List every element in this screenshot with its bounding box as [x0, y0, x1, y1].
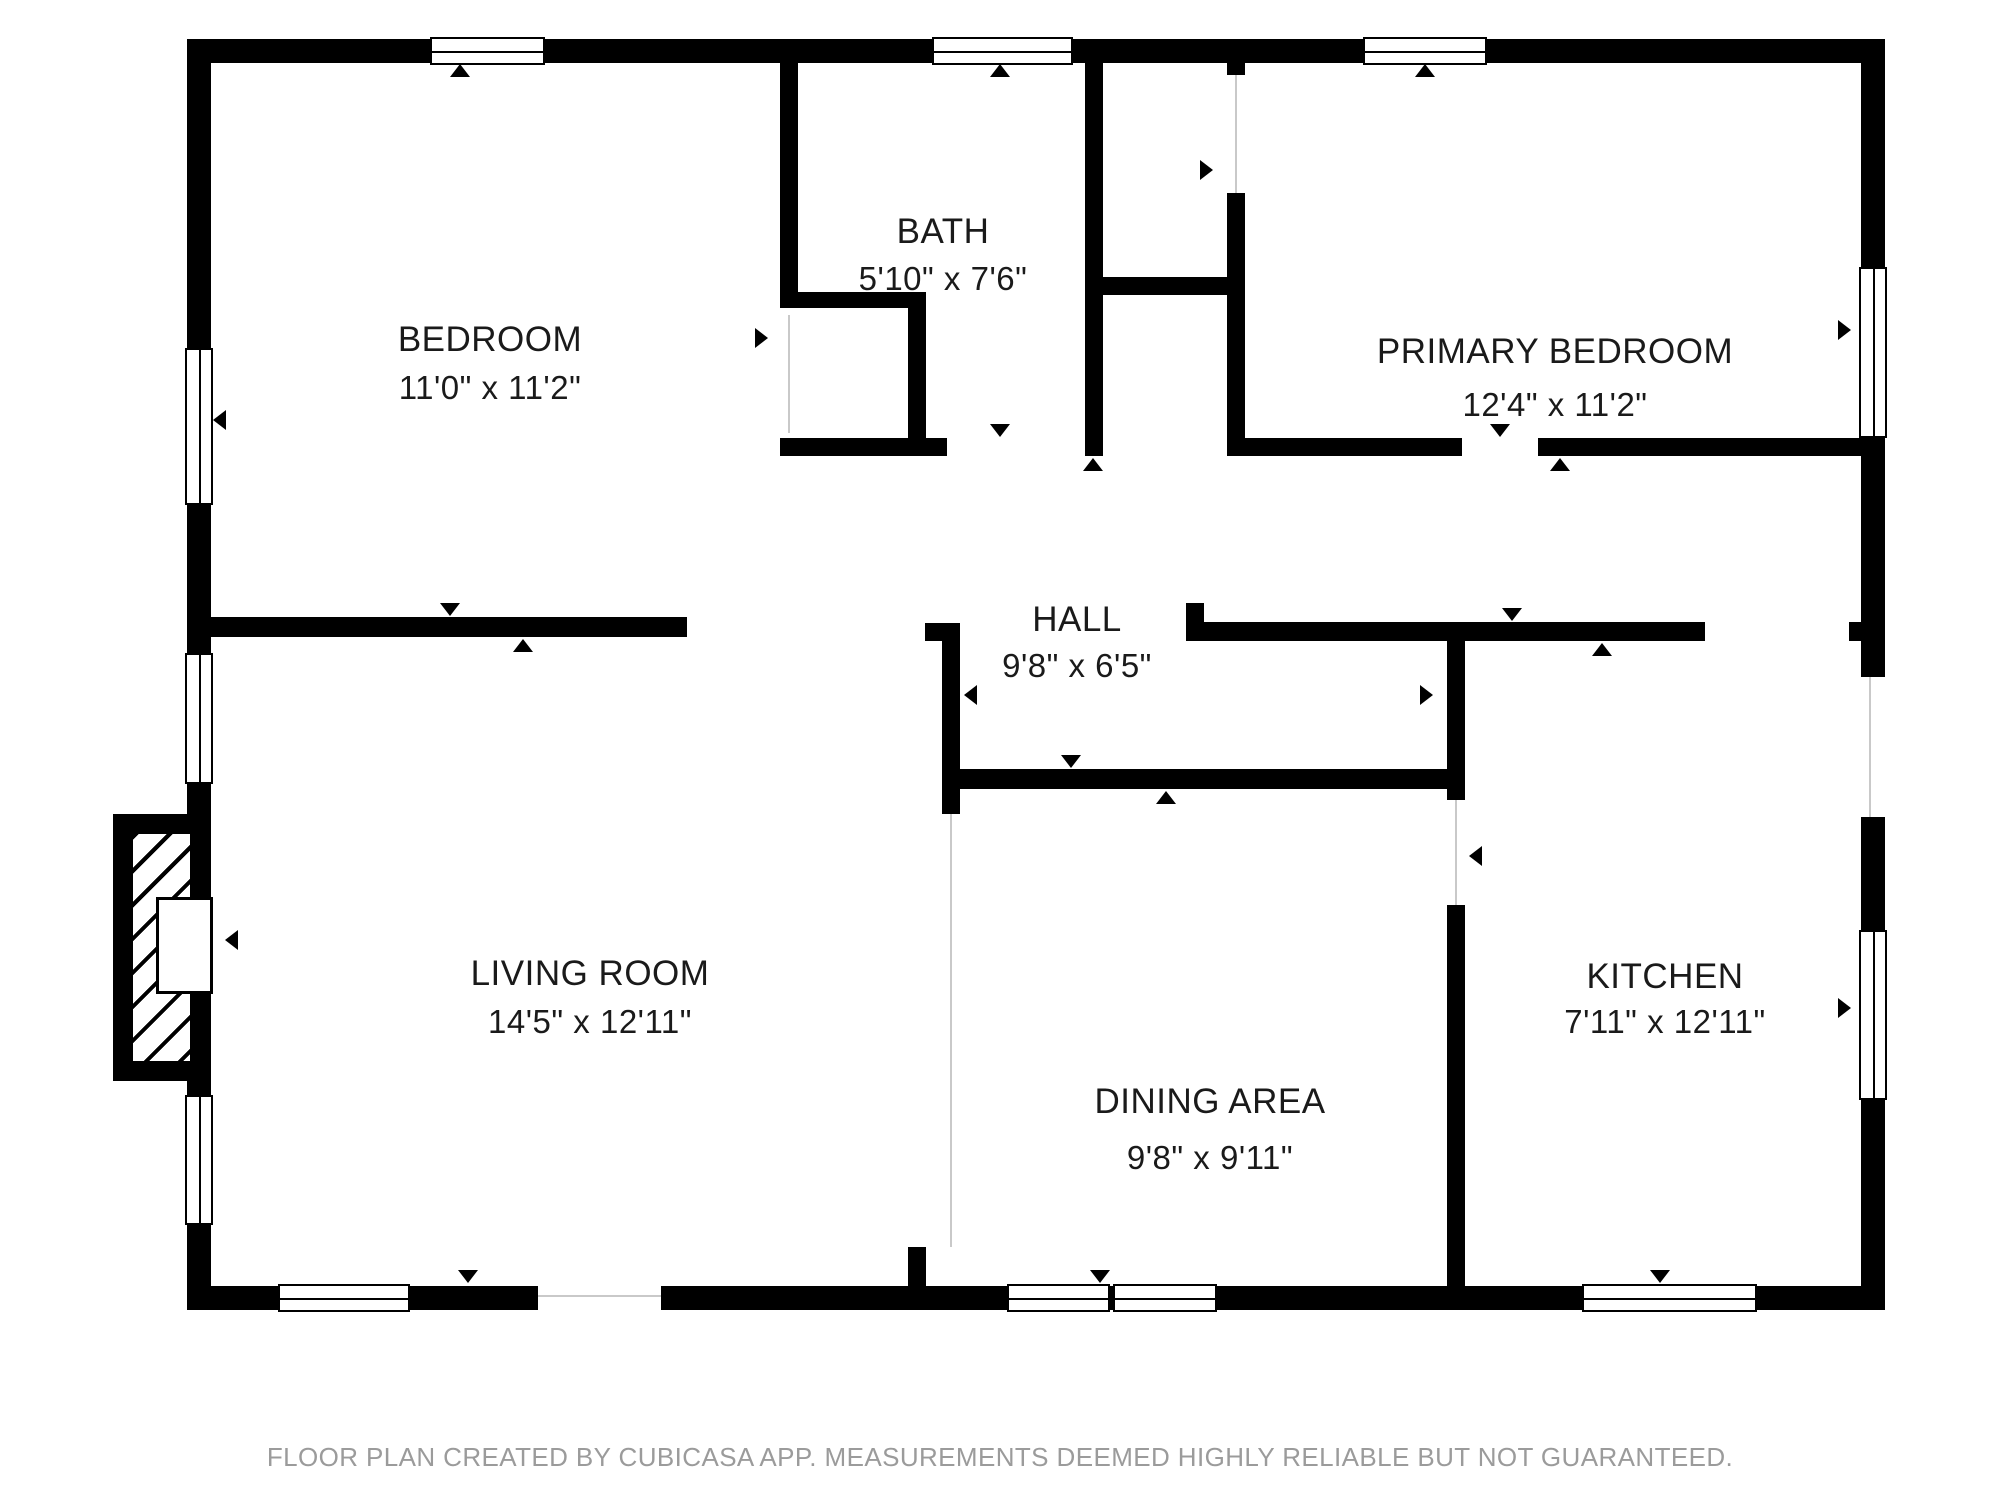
primary-door-marker-out [1550, 458, 1570, 471]
dining-bottom-window-left [1007, 1284, 1110, 1312]
hall-bottom-wall [960, 769, 1465, 789]
room-label-primary-bedroom: PRIMARY BEDROOM [1377, 332, 1733, 372]
room-dims-hall: 9'8" x 6'5" [1002, 647, 1152, 685]
hall-bottom-marker-in [1061, 755, 1081, 768]
primary-bedroom-top-window [1363, 37, 1487, 65]
living-room-bottom-window-mullion [279, 1298, 409, 1300]
kitchen-top-wall-east-stub [1849, 622, 1861, 641]
primary-bedroom-left-wall [1227, 193, 1245, 456]
bedroom-top-window-mullion [431, 51, 544, 53]
primary-right-window-marker [1838, 320, 1851, 340]
room-dims-living-room: 14'5" x 12'11" [488, 1003, 692, 1041]
bath-top-window [932, 37, 1073, 65]
primary-top-window-marker [1415, 64, 1435, 77]
hall-width-marker-east [1420, 685, 1433, 705]
dining-kitchen-wall-lower [1447, 905, 1465, 1286]
closet-divider-wall [1103, 277, 1227, 295]
living-room-bottom-window [278, 1284, 410, 1312]
bedroom-top-window-marker [450, 64, 470, 77]
bedroom-left-window-mullion [199, 349, 201, 504]
bedroom-closet-opening [788, 315, 790, 433]
kitchen-top-wall-stub-up [1186, 603, 1204, 622]
primary-bedroom-bottom-wall-east [1538, 438, 1861, 456]
kitchen-bottom-window [1582, 1284, 1757, 1312]
bedroom-left-window [185, 348, 213, 505]
primary-closet-opening [1235, 75, 1237, 193]
hall-west-wall [942, 623, 960, 814]
primary-bedroom-left-wall-stub [1227, 63, 1245, 75]
dining-bottom-window-right-mullion [1114, 1298, 1216, 1300]
room-dims-bath: 5'10" x 7'6" [859, 260, 1028, 298]
kitchen-bottom-window-mullion [1583, 1298, 1756, 1300]
room-dims-primary-bedroom: 12'4" x 11'2" [1462, 386, 1647, 424]
room-label-bedroom: BEDROOM [398, 320, 582, 360]
room-dims-bedroom: 11'0" x 11'2" [399, 369, 582, 407]
room-dims-dining-area: 9'8" x 9'11" [1127, 1139, 1293, 1177]
bedroom-top-window [430, 37, 545, 65]
front-door-sill [538, 1295, 661, 1297]
dining-kitchen-opening [1455, 800, 1457, 905]
primary-bedroom-right-window-mullion [1873, 268, 1875, 437]
bedroom-door-marker-in [440, 603, 460, 616]
fireplace-marker [225, 930, 238, 950]
primary-closet-marker [1200, 160, 1213, 180]
living-room-left-window-lower-mullion [199, 1096, 201, 1224]
bath-door-marker-out [1083, 458, 1103, 471]
bedroom-closet-marker [755, 328, 768, 348]
primary-door-marker-in [1490, 424, 1510, 437]
bedroom-left-window-marker [213, 410, 226, 430]
room-label-bath: BATH [897, 212, 990, 252]
room-label-kitchen: KITCHEN [1586, 957, 1743, 997]
room-label-living-room: LIVING ROOM [471, 954, 710, 994]
dining-opening-marker [1469, 846, 1482, 866]
bath-top-window-mullion [933, 51, 1072, 53]
kitchen-right-window [1859, 930, 1887, 1100]
bedroom-bath-wall [780, 63, 798, 308]
living-room-left-window-upper-mullion [199, 654, 201, 783]
dining-kitchen-wall-upper [1447, 641, 1465, 800]
bath-bottom-wall [780, 438, 947, 456]
room-label-hall: HALL [1032, 600, 1122, 640]
primary-bedroom-bottom-wall-west [1245, 438, 1462, 456]
dining-west-stub [908, 1247, 926, 1286]
living-room-left-window-lower [185, 1095, 213, 1225]
bath-door-marker-in [990, 424, 1010, 437]
bedroom-closet-right-wall [908, 308, 926, 440]
kitchen-right-window-mullion [1873, 931, 1875, 1099]
dining-bottom-window-right [1113, 1284, 1217, 1312]
hall-bottom-marker-out [1156, 791, 1176, 804]
bath-top-window-marker [990, 64, 1010, 77]
living-dining-boundary [950, 814, 952, 1247]
primary-bedroom-right-window [1859, 267, 1887, 438]
kitchen-top-marker-out [1592, 643, 1612, 656]
room-dims-kitchen: 7'11" x 12'11" [1564, 1003, 1765, 1041]
kitchen-top-wall [1186, 622, 1705, 641]
living-room-left-window-upper [185, 653, 213, 784]
kitchen-right-window-marker [1838, 998, 1851, 1018]
footer-disclaimer: FLOOR PLAN CREATED BY CUBICASA APP. MEAS… [267, 1442, 1733, 1473]
kitchen-window-marker [1650, 1270, 1670, 1283]
primary-bedroom-top-window-mullion [1364, 51, 1486, 53]
dining-window-marker [1090, 1270, 1110, 1283]
kitchen-top-marker-in [1502, 608, 1522, 621]
floor-plan-canvas: BEDROOM 11'0" x 11'2" BATH 5'10" x 7'6" … [0, 0, 2000, 1500]
side-door-sill [1869, 677, 1871, 817]
bedroom-bottom-wall [211, 617, 687, 637]
front-door-marker [458, 1270, 478, 1283]
room-label-dining-area: DINING AREA [1094, 1082, 1325, 1122]
bath-right-wall [1085, 63, 1103, 456]
bedroom-door-marker-out [513, 639, 533, 652]
hall-width-marker-west [964, 685, 977, 705]
dining-bottom-window-left-mullion [1008, 1298, 1109, 1300]
fireplace-firebox [156, 897, 213, 994]
